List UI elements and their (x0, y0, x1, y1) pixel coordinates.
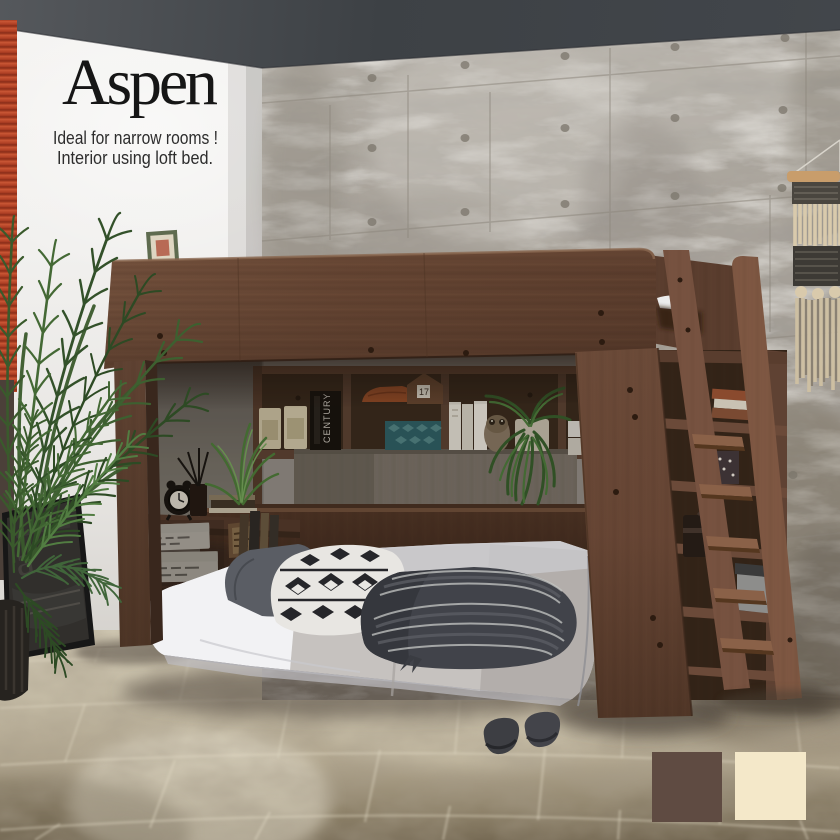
svg-text:Ideal for narrow rooms !: Ideal for narrow rooms ! (53, 127, 218, 148)
svg-text:Aspen: Aspen (62, 46, 218, 119)
svg-text:Interior using loft bed.: Interior using loft bed. (57, 147, 213, 168)
